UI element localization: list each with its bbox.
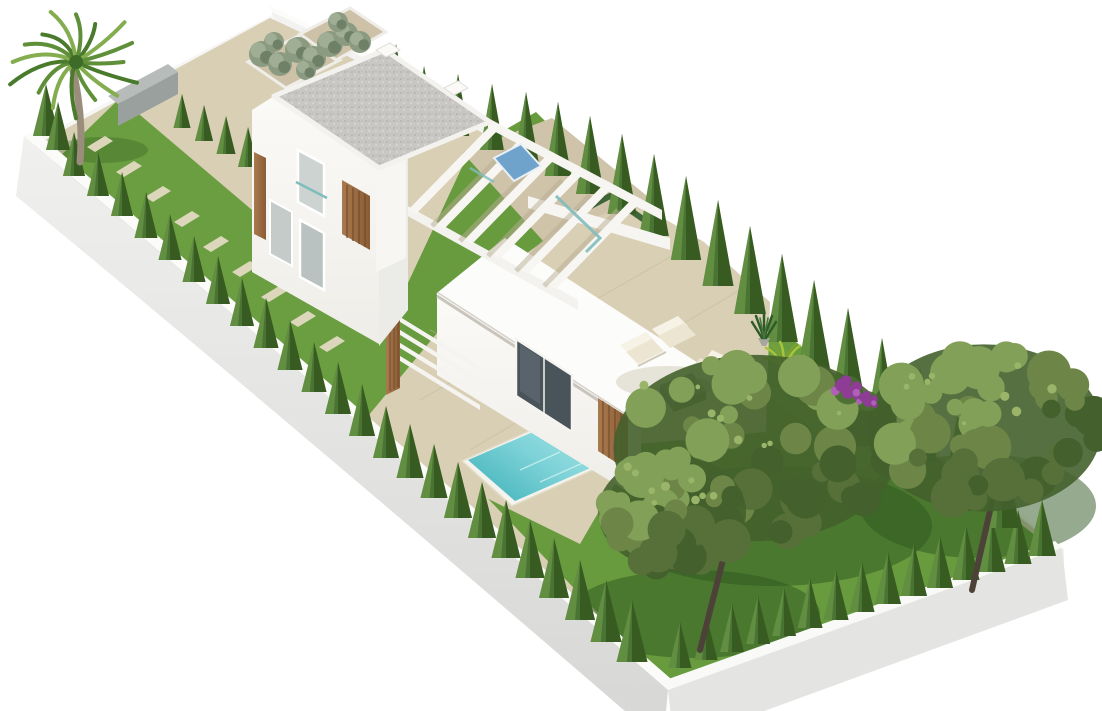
palm-crown (69, 55, 83, 69)
cypress-tree (734, 226, 766, 314)
planter-shrub (349, 31, 371, 53)
villa-window-left (270, 200, 292, 266)
planter-shrub (296, 60, 316, 80)
cypress-tree (671, 176, 701, 260)
render-canvas (0, 0, 1102, 711)
villa-wood-panel-left (254, 152, 266, 240)
villa-window-lower (300, 220, 324, 290)
planter-shrub (328, 12, 348, 32)
property-render: Aerial oblique render of a modern two-st… (0, 0, 1102, 711)
planter-shrub (264, 32, 284, 52)
cypress-tree (703, 200, 734, 286)
